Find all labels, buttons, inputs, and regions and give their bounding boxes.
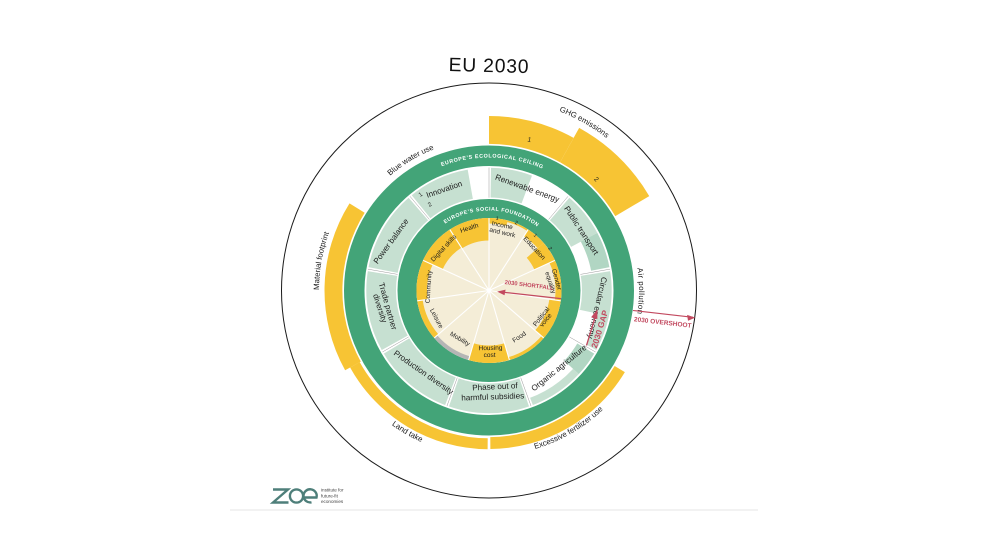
svg-text:future-fit: future-fit: [321, 493, 339, 498]
svg-text:economies: economies: [321, 499, 344, 504]
svg-text:institute for: institute for: [321, 488, 344, 493]
svg-text:cost: cost: [484, 352, 496, 359]
svg-text:EU 2030: EU 2030: [448, 55, 529, 78]
